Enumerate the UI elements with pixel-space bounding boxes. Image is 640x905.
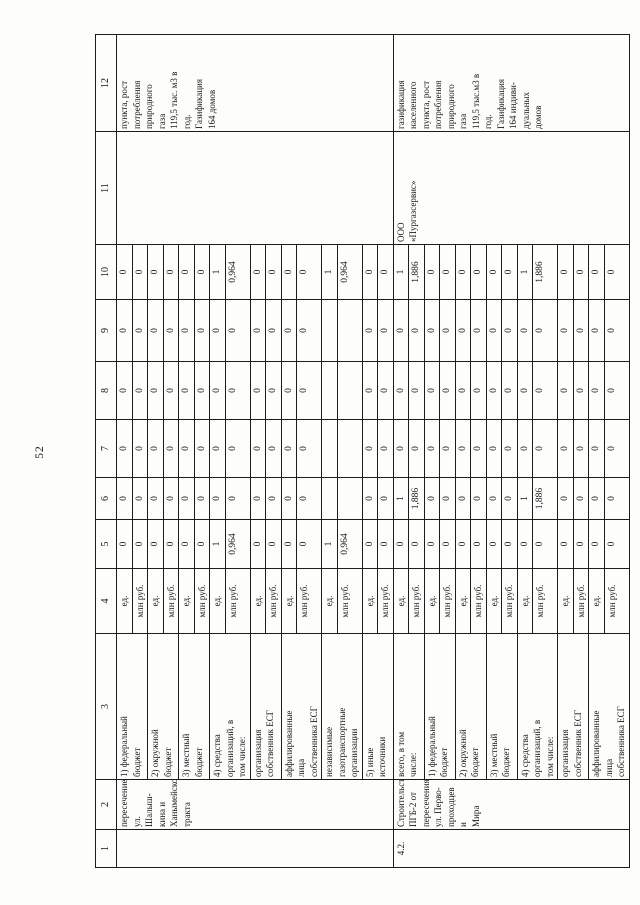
value-cell: 0 [378,300,394,362]
value-cell: 0 [573,300,589,362]
value-cell: 0 [266,478,282,520]
value-cell: 0 [393,300,409,362]
value-cell: 0 [163,420,179,478]
value-cell: 0 [148,245,164,300]
value-cell: 0 [573,420,589,478]
value-cell: 0 [573,520,589,569]
value-cell: 0 [362,362,378,420]
value-cell: 0 [250,520,266,569]
funding-source-cell: организация собственник ЕСГ [558,634,589,780]
value-cell: 0 [179,478,195,520]
column-number-header: 5 [96,520,117,569]
value-cell: 0 [194,420,210,478]
value-cell: 0 [502,520,518,569]
value-cell: 1 [517,478,533,520]
column-number-header: 1 [96,830,117,868]
value-cell [337,478,362,520]
value-cell: 0 [573,362,589,420]
value-cell: 1,886 [533,478,558,520]
value-cell: 0 [393,362,409,420]
value-cell: 0,964 [337,520,362,569]
value-cell [322,362,338,420]
value-cell: 1,886 [533,245,558,300]
value-cell: 0 [250,420,266,478]
unit-cell: ед. [558,569,574,634]
value-cell: 0 [455,520,471,569]
funding-source-cell: 4) средства организаций, в том числе: [210,634,251,780]
value-cell: 0 [502,300,518,362]
column-number-header: 8 [96,362,117,420]
value-cell: 0 [297,300,322,362]
value-cell: 1 [393,245,409,300]
funding-source-cell: 1) федеральный бюджет [117,634,148,780]
value-cell: 1 [210,245,226,300]
value-cell: 0 [393,520,409,569]
funding-source-cell: 1) федеральный бюджет [424,634,455,780]
column-number-header: 11 [96,132,117,245]
value-cell: 0 [558,420,574,478]
funding-source-cell: аффилированные лица собственника ЕСГ [281,634,322,780]
value-cell: 0 [573,245,589,300]
funding-source-cell: 3) местный бюджет [486,634,517,780]
value-cell: 0 [194,362,210,420]
unit-cell: млн руб. [132,569,148,634]
unit-cell: млн руб. [502,569,518,634]
unit-cell: ед. [589,569,605,634]
unit-cell: млн руб. [440,569,456,634]
value-cell: 0 [558,300,574,362]
funding-source-cell: 2) окружной бюджет [455,634,486,780]
value-cell: 0 [604,478,629,520]
value-cell: 0 [440,520,456,569]
funding-source-cell: организация собственник ЕСГ [250,634,281,780]
value-cell: 0 [440,245,456,300]
value-cell: 0 [471,478,487,520]
value-cell: 0 [471,520,487,569]
value-cell: 0 [117,420,133,478]
value-cell: 0 [471,300,487,362]
funding-source-cell: 4) средства организаций, в том числе: [517,634,558,780]
value-cell: 0 [148,478,164,520]
unit-cell: ед. [148,569,164,634]
value-cell: 0 [250,245,266,300]
value-cell [322,300,338,362]
unit-cell: ед. [250,569,266,634]
value-cell: 0 [573,478,589,520]
value-cell: 0 [281,300,297,362]
value-cell: 0 [471,420,487,478]
unit-cell: ед. [455,569,471,634]
value-cell: 1 [210,520,226,569]
value-cell: 0 [604,520,629,569]
executor-cell: ООО «Пургазсервис» [393,132,629,245]
value-cell: 0 [455,362,471,420]
value-cell: 0 [210,478,226,520]
column-number-header: 2 [96,780,117,830]
column-number-header: 4 [96,569,117,634]
value-cell: 0 [362,478,378,520]
value-cell: 0 [558,478,574,520]
value-cell: 0 [281,362,297,420]
column-number-header: 6 [96,478,117,520]
value-cell: 0 [132,478,148,520]
value-cell: 0 [225,300,250,362]
value-cell: 0 [502,362,518,420]
value-cell: 0 [148,300,164,362]
unit-cell: ед. [179,569,195,634]
value-cell: 0 [455,420,471,478]
value-cell: 0 [440,300,456,362]
value-cell: 0 [266,420,282,478]
value-cell: 0 [424,362,440,420]
value-cell: 1,886 [409,478,425,520]
value-cell: 0 [378,245,394,300]
program-financing-table: 123456789101112пересечение ул. Шалыш- ки… [95,34,630,868]
value-cell: 0 [440,420,456,478]
value-cell: 0 [132,420,148,478]
unit-cell: млн руб. [266,569,282,634]
value-cell: 0 [179,362,195,420]
unit-cell: ед. [517,569,533,634]
value-cell: 0 [132,300,148,362]
column-number-header: 3 [96,634,117,780]
value-cell: 0 [486,478,502,520]
value-cell: 0 [424,478,440,520]
value-cell: 0 [297,362,322,420]
unit-cell: млн руб. [194,569,210,634]
item-name-cell: Строительство ПГБ-2 от пересечения ул. П… [393,780,629,830]
value-cell: 0 [194,300,210,362]
value-cell: 0 [533,520,558,569]
value-cell: 0 [163,520,179,569]
value-cell: 0 [589,245,605,300]
funding-source-cell: 2) окружной бюджет [148,634,179,780]
result-cell: газификация населенного пункта, рост пот… [393,35,629,132]
value-cell: 0 [179,520,195,569]
column-number-header: 10 [96,245,117,300]
value-cell: 0 [250,478,266,520]
value-cell: 0 [281,420,297,478]
value-cell: 1 [393,478,409,520]
value-cell [322,478,338,520]
value-cell: 0,964 [225,245,250,300]
value-cell: 0 [132,245,148,300]
value-cell: 0 [517,420,533,478]
page: 52 123456789101112пересечение ул. Шалыш-… [0,0,640,905]
value-cell: 0 [486,245,502,300]
value-cell: 0 [210,362,226,420]
value-cell: 0 [378,478,394,520]
value-cell: 0 [589,362,605,420]
value-cell: 0 [132,520,148,569]
value-cell: 0 [117,300,133,362]
value-cell: 0 [297,520,322,569]
value-cell: 0 [362,520,378,569]
value-cell: 0 [281,520,297,569]
unit-cell: млн руб. [225,569,250,634]
value-cell: 0 [589,420,605,478]
value-cell: 0,964 [225,520,250,569]
value-cell: 0 [502,245,518,300]
value-cell: 0 [297,478,322,520]
value-cell: 0 [362,300,378,362]
value-cell: 0 [148,362,164,420]
value-cell: 0 [281,478,297,520]
value-cell: 0 [558,362,574,420]
value-cell: 0 [148,520,164,569]
value-cell: 0 [424,245,440,300]
unit-cell: ед. [393,569,409,634]
value-cell: 0 [409,520,425,569]
unit-cell: ед. [322,569,338,634]
value-cell: 0 [604,245,629,300]
value-cell: 0 [117,362,133,420]
column-number-header: 7 [96,420,117,478]
value-cell: 0 [117,478,133,520]
value-cell: 0 [589,300,605,362]
value-cell: 0 [604,362,629,420]
value-cell: 1 [517,245,533,300]
value-cell: 0 [225,362,250,420]
page-number: 52 [34,437,46,467]
value-cell: 0 [281,245,297,300]
value-cell: 0 [266,362,282,420]
item-number-cell [117,830,394,868]
value-cell [322,420,338,478]
executor-cell [117,132,394,245]
unit-cell: ед. [210,569,226,634]
value-cell: 0 [533,300,558,362]
value-cell: 1 [322,245,338,300]
value-cell: 0 [179,420,195,478]
item-name-cell: пересечение ул. Шалыш- кина и Ханымейско… [117,780,394,830]
value-cell [337,300,362,362]
unit-cell: млн руб. [337,569,362,634]
unit-cell: ед. [362,569,378,634]
unit-cell: млн руб. [604,569,629,634]
value-cell: 0 [266,245,282,300]
value-cell: 0 [225,420,250,478]
value-cell: 0 [393,420,409,478]
item-number-cell: 4.2. [393,830,629,868]
funding-source-cell: независимые газотранспортные организации [322,634,363,780]
value-cell: 0 [471,245,487,300]
value-cell: 0 [455,300,471,362]
value-cell: 0 [132,362,148,420]
value-cell: 0 [558,245,574,300]
value-cell: 0 [179,245,195,300]
value-cell: 0 [362,420,378,478]
value-cell: 0 [297,245,322,300]
value-cell: 0 [440,478,456,520]
value-cell: 0 [486,362,502,420]
unit-cell: млн руб. [297,569,322,634]
value-cell: 0 [486,300,502,362]
unit-cell: млн руб. [409,569,425,634]
value-cell: 0 [266,300,282,362]
value-cell: 0 [163,478,179,520]
funding-source-cell: всего, в том числе: [393,634,424,780]
value-cell: 0 [194,245,210,300]
value-cell: 0 [362,245,378,300]
value-cell: 0 [117,520,133,569]
value-cell: 1 [322,520,338,569]
funding-source-cell: 5) иные источники [362,634,393,780]
value-cell: 0 [471,362,487,420]
column-number-header: 12 [96,35,117,132]
value-cell: 0 [250,362,266,420]
value-cell: 0 [297,420,322,478]
unit-cell: млн руб. [533,569,558,634]
value-cell: 0 [163,362,179,420]
value-cell: 0 [517,362,533,420]
value-cell: 0 [266,520,282,569]
value-cell: 0 [533,420,558,478]
unit-cell: млн руб. [163,569,179,634]
unit-cell: ед. [117,569,133,634]
value-cell: 0 [163,245,179,300]
table-body: 123456789101112пересечение ул. Шалыш- ки… [96,35,630,868]
column-number-header: 9 [96,300,117,362]
value-cell: 0 [517,300,533,362]
value-cell: 0 [589,520,605,569]
value-cell: 0 [378,420,394,478]
value-cell: 0 [589,478,605,520]
unit-cell: ед. [281,569,297,634]
value-cell: 0 [117,245,133,300]
value-cell: 0 [604,420,629,478]
value-cell: 0,964 [337,245,362,300]
value-cell: 0 [486,420,502,478]
value-cell [337,362,362,420]
result-cell: пункта, рост потребления природного газа… [117,35,394,132]
value-cell: 0 [194,520,210,569]
value-cell: 0 [194,478,210,520]
funding-source-cell: 3) местный бюджет [179,634,210,780]
value-cell: 0 [424,520,440,569]
value-cell: 0 [378,362,394,420]
value-cell: 0 [604,300,629,362]
value-cell: 0 [440,362,456,420]
value-cell: 0 [210,300,226,362]
value-cell: 0 [250,300,266,362]
value-cell: 0 [502,478,518,520]
value-cell: 0 [502,420,518,478]
value-cell: 1,886 [409,245,425,300]
value-cell: 0 [163,300,179,362]
unit-cell: млн руб. [471,569,487,634]
value-cell: 0 [424,300,440,362]
value-cell: 0 [409,420,425,478]
unit-cell: млн руб. [573,569,589,634]
unit-cell: ед. [486,569,502,634]
value-cell: 0 [409,362,425,420]
value-cell: 0 [533,362,558,420]
value-cell: 0 [179,300,195,362]
value-cell: 0 [424,420,440,478]
value-cell: 0 [455,478,471,520]
value-cell: 0 [517,520,533,569]
value-cell: 0 [558,520,574,569]
value-cell: 0 [225,478,250,520]
value-cell: 0 [455,245,471,300]
value-cell: 0 [210,420,226,478]
unit-cell: млн руб. [378,569,394,634]
scanned-document: 52 123456789101112пересечение ул. Шалыш-… [0,0,640,905]
funding-source-cell: аффилированные лица собственника ЕСГ [589,634,630,780]
value-cell: 0 [409,300,425,362]
value-cell: 0 [378,520,394,569]
unit-cell: ед. [424,569,440,634]
value-cell: 0 [486,520,502,569]
value-cell [337,420,362,478]
value-cell: 0 [148,420,164,478]
